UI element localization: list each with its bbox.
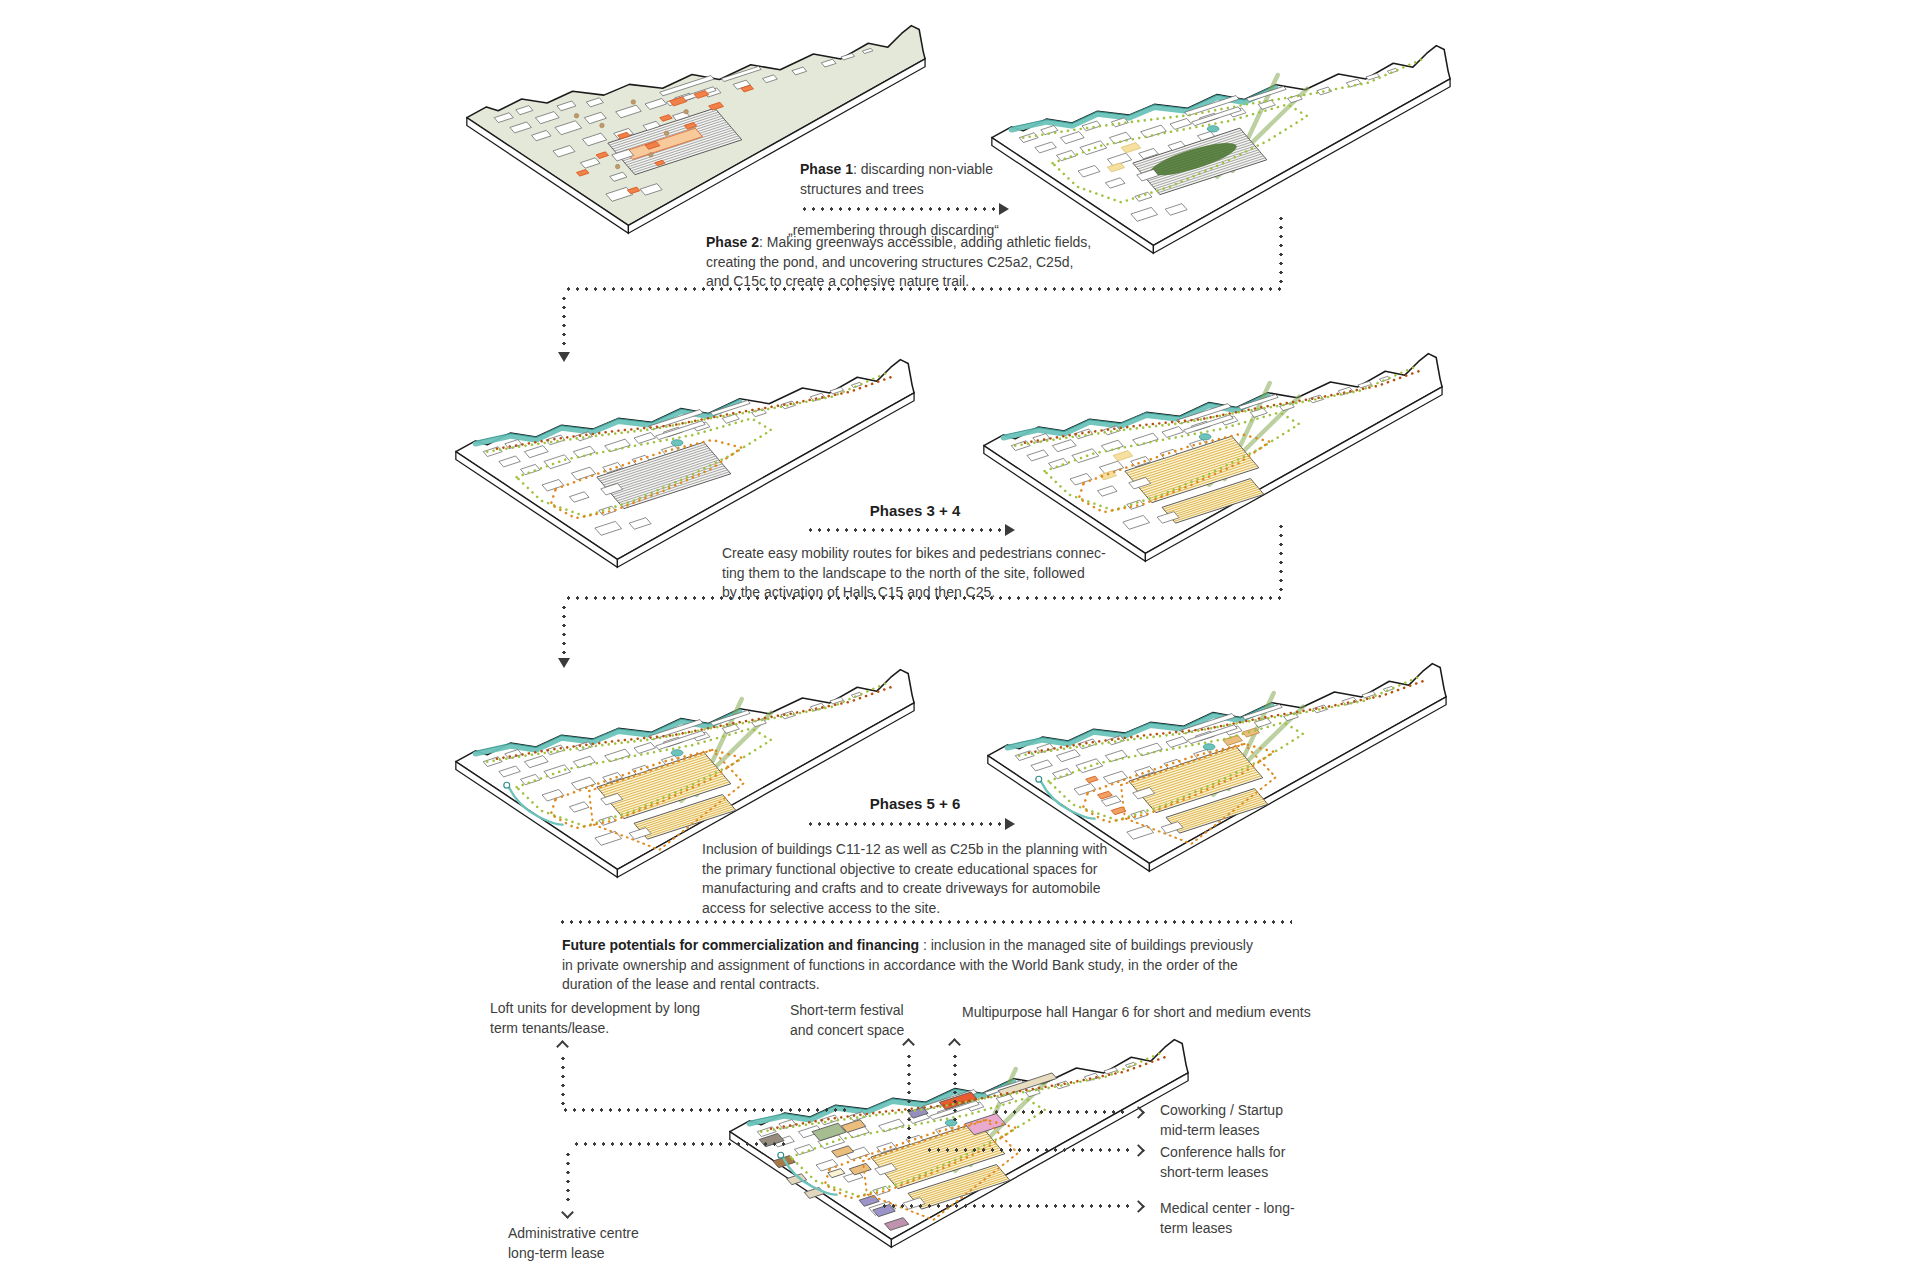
flow-connector-2-right (1279, 522, 1283, 594)
chevron-up-icon (556, 1040, 569, 1053)
flow-connector-2-left (562, 603, 566, 657)
phase1-text: Phase 1: discarding non-viablestructures… (800, 160, 993, 199)
conference-leader-line (925, 1148, 1130, 1152)
admin-connector-horizontal (572, 1142, 787, 1146)
label-multipurpose-hall: Multipurpose hall Hangar 6 for short and… (962, 1003, 1311, 1023)
phases-5-6-dotted-arrow (806, 822, 1002, 826)
phases-3-4-dotted-arrow (806, 528, 1002, 532)
future-divider-dots (558, 920, 1292, 924)
label-administrative-centre: Administrative centrelong-term lease (508, 1224, 639, 1263)
loft-connector-horizontal (561, 1108, 846, 1112)
arrow-right-icon (1005, 818, 1015, 830)
multipurpose-connector-vertical (953, 1052, 957, 1126)
loft-connector-vertical (561, 1054, 565, 1110)
phase2-text: Phase 2: Making greenways accessible, ad… (706, 233, 1091, 292)
medical-leader-line (880, 1204, 1130, 1208)
phases-5-6-title: Phases 5 + 6 (815, 795, 1015, 812)
festival-connector-vertical (907, 1052, 911, 1140)
arrow-down-icon (558, 658, 570, 668)
label-conference-halls: Conference halls forshort-term leases (1160, 1143, 1285, 1182)
admin-connector-vertical (566, 1150, 570, 1206)
label-festival-space: Short-term festivaland concert space (790, 1001, 904, 1040)
flow-connector-1-horizontal (564, 287, 1282, 291)
label-loft-units: Loft units for development by longterm t… (490, 999, 700, 1038)
coworking-leader-line (992, 1110, 1130, 1114)
arrow-right-icon (1005, 524, 1015, 536)
phases-5-6-text: Inclusion of buildings C11-12 as well as… (702, 840, 1107, 918)
arrow-right-icon (999, 203, 1009, 215)
arrow-down-icon (558, 352, 570, 362)
future-potentials-text: Future potentials for commercialization … (562, 936, 1253, 995)
flow-connector-2-horizontal (564, 596, 1282, 600)
flow-connector-1-right (1279, 214, 1283, 286)
flow-connector-1-left (562, 294, 566, 350)
label-medical-center: Medical center - long-term leases (1160, 1199, 1295, 1238)
phases-3-4-text: Create easy mobility routes for bikes an… (722, 544, 1106, 603)
phases-3-4-title: Phases 3 + 4 (815, 502, 1015, 519)
phasing-diagram-page: Phase 1: discarding non-viablestructures… (0, 0, 1920, 1280)
label-coworking: Coworking / Startupmid-term leases (1160, 1101, 1283, 1140)
phase1-dotted-arrow (800, 207, 996, 211)
chevron-down-icon (561, 1206, 574, 1219)
